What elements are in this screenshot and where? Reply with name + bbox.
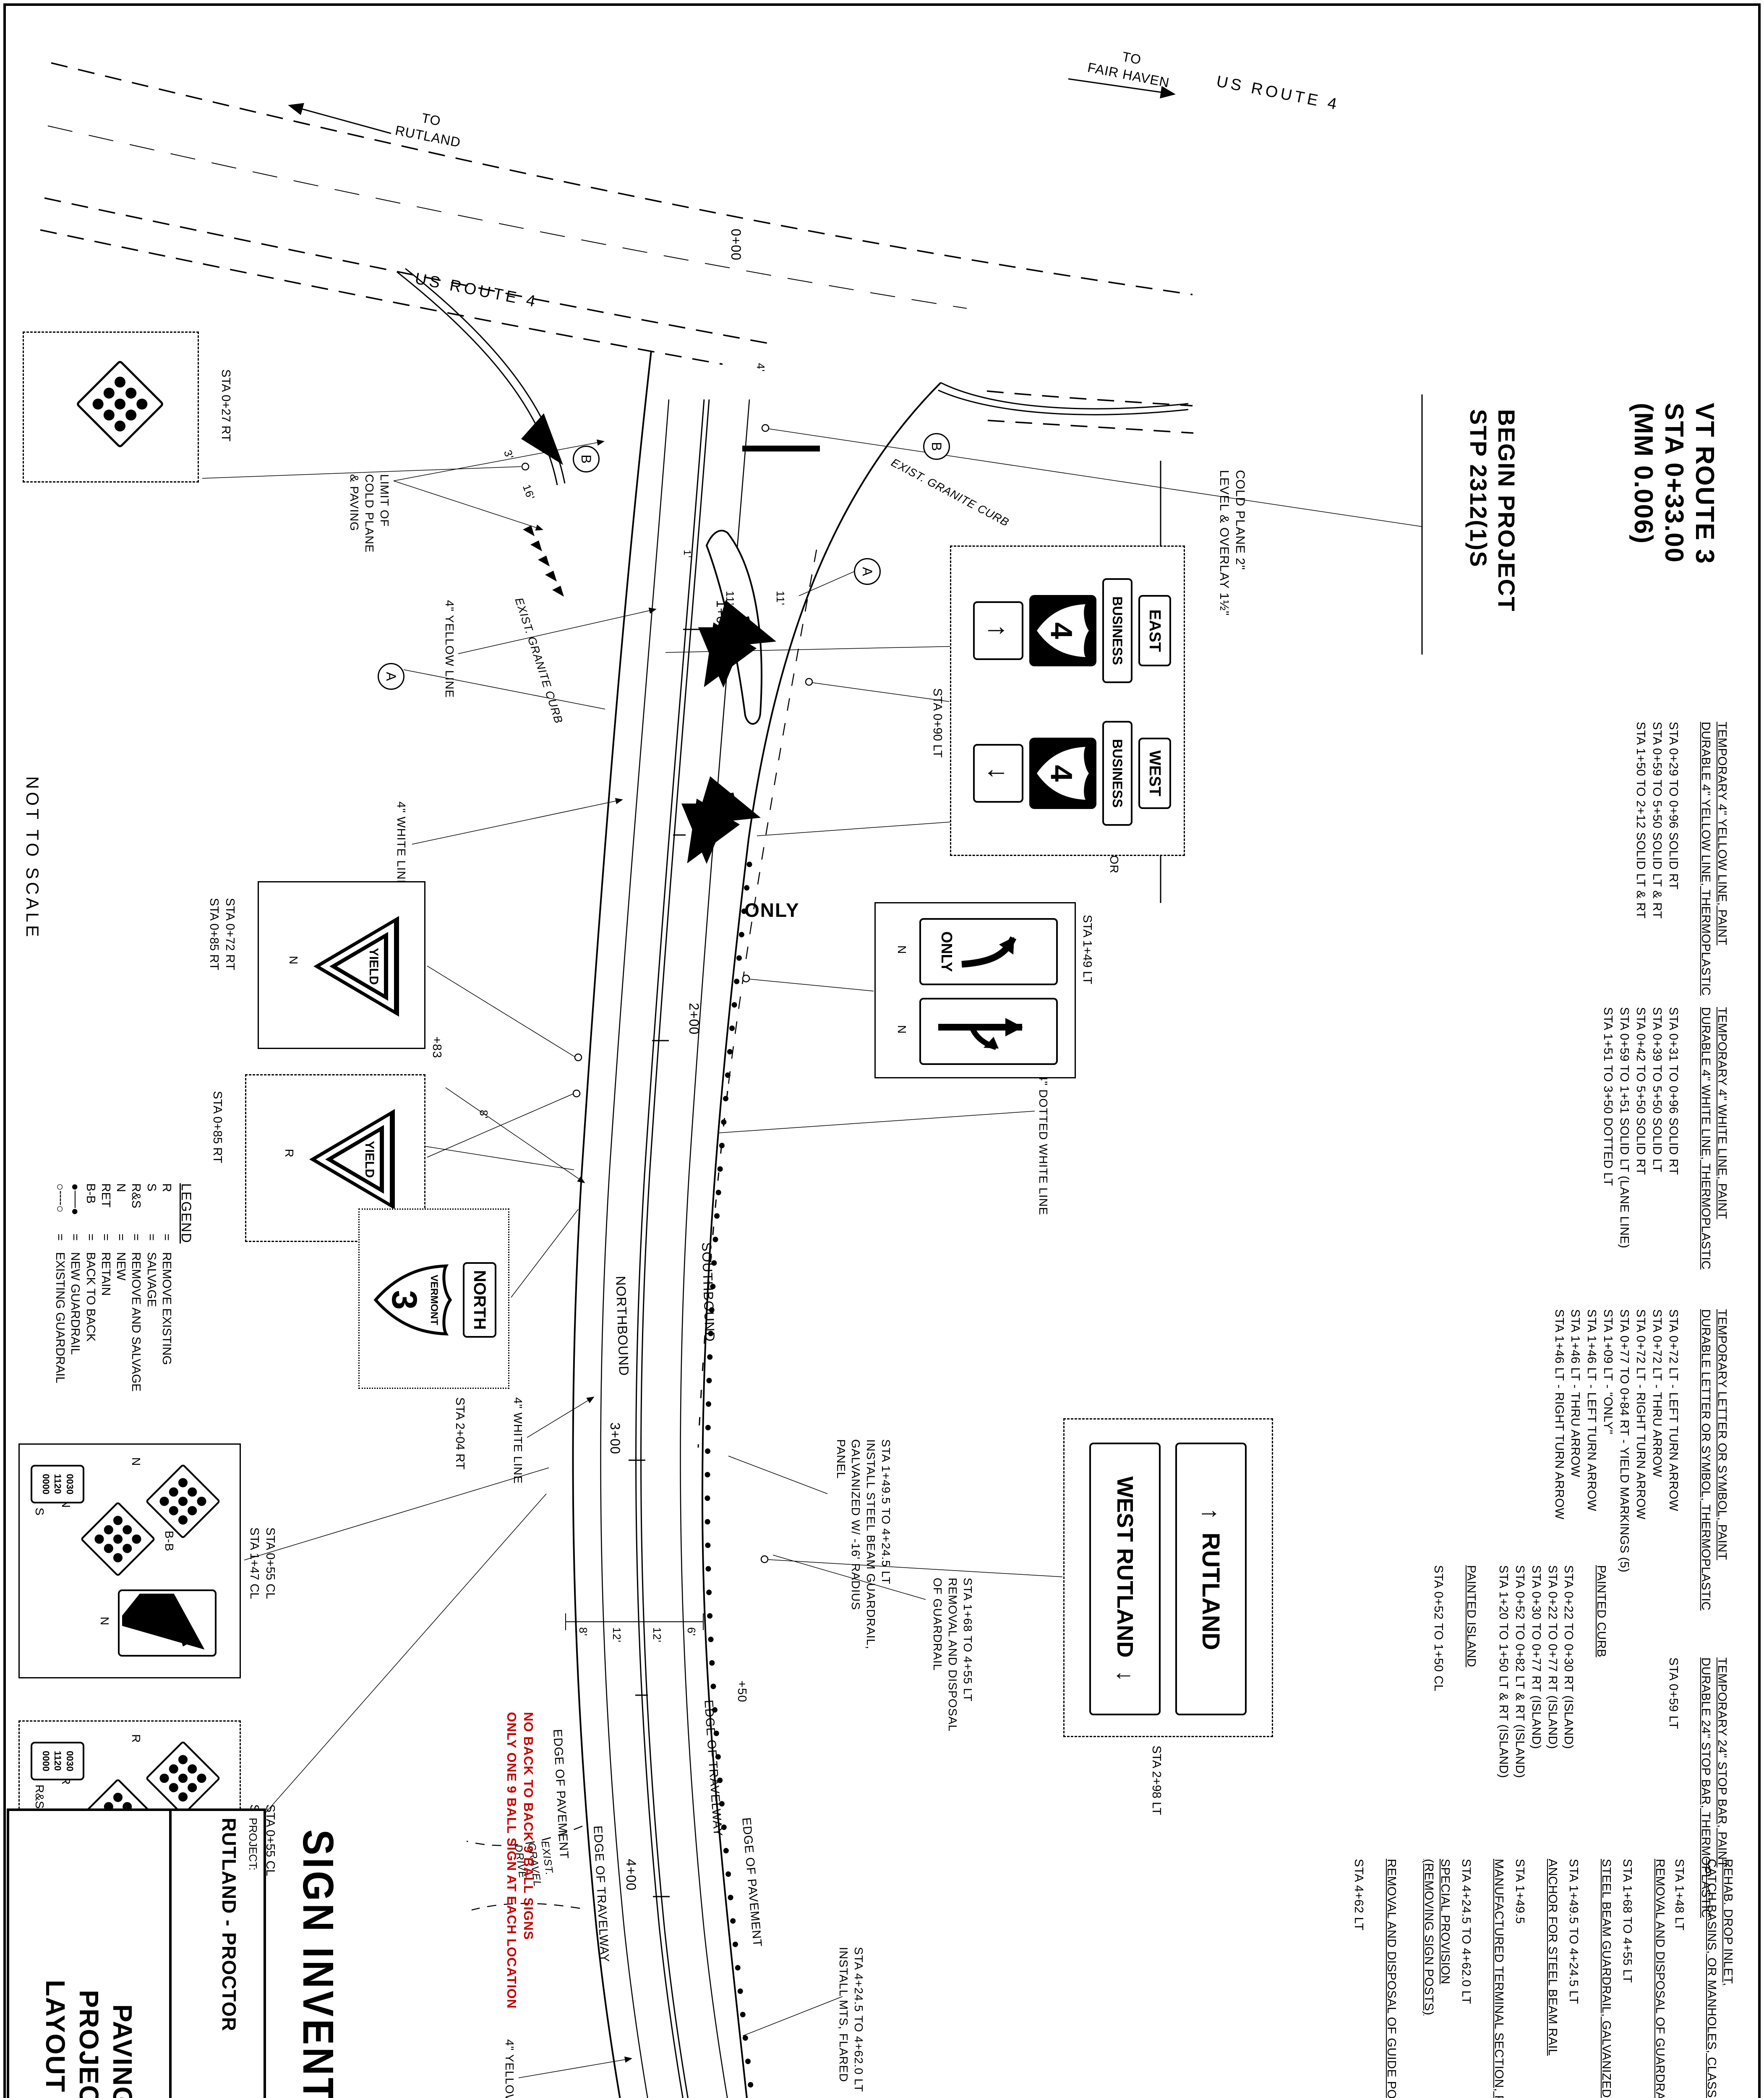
sheet-name-title: SIGN INVENTORY SHEET [293,1829,342,2098]
us-route-4-road [40,63,1193,433]
stop-bar [742,446,820,451]
note-body: STA 4+62 LT [1351,1859,1367,2098]
legend-symbol: N [113,1183,128,1234]
condition-label: N [895,1025,908,1033]
legend-description: RETAIN [98,1252,113,1296]
plan-label: +50 [700,808,716,830]
note-heading: SPECIAL PROVISION (REMOVING SIGN POSTS) [1420,1859,1453,2015]
plan-label: ONLY [744,898,800,923]
note-heading: TEMPORARY LETTER OR SYMBOL, PAINT DURABL… [1697,1309,1730,1610]
plan-label: 4" YELLOW LINE [502,2039,517,2098]
legend-title: LEGEND [178,1183,194,1392]
sign-box-vt3-north: NORTH VERMONT 3 [358,1208,509,1389]
nine-ball-sign-icon [91,1512,145,1566]
plan-label: COLD PLANE 2" LEVEL & OVERLAY 1½" [1216,470,1248,616]
plan-label: STA 1+68 TO 4+55 LT REMOVAL AND DISPOSAL… [930,1578,975,1732]
legend-equals: = [144,1234,159,1252]
plan-label: 12' [610,1627,624,1643]
svg-text:VERMONT: VERMONT [428,1275,440,1325]
sign-box-9ball [23,331,199,483]
plan-label: 4" DOTTED WHITE LINE [1036,1074,1051,1215]
west-rutland-sign-text: WEST RUTLAND [1112,1477,1138,1658]
legend-symbol: R&S [128,1183,144,1234]
condition-label: N [895,945,908,954]
title-block: PROJECT: RUTLAND - PROCTOR PROJECT NO.: … [7,1808,266,2098]
up-arrow-plate: ↑ [973,601,1023,660]
note-heading: TEMPORARY 4" WHITE LINE, PAINT DURABLE 4… [1697,1007,1730,1270]
note-heading: ANCHOR FOR STEEL BEAM RAIL [1544,1859,1560,2056]
legend-symbol: ○╌╌○ [52,1183,68,1234]
detail-bubble: A [854,558,881,585]
yield-sign-icon: YIELD [311,916,399,1017]
plan-label: NOT TO SCALE [21,776,44,940]
legend-row: N = NEW [113,1183,128,1392]
condition-label: R [129,1734,143,1743]
legend-equals: = [113,1234,128,1252]
legend-row: R = REMOVE EXISTING [159,1183,174,1392]
detail-bubble: A [378,663,404,690]
note-heading: STEEL BEAM GUARDRAIL, GALVANIZED [1598,1859,1614,2098]
legend-description: REMOVE AND SALVAGE [128,1252,144,1392]
legend-symbol: RET [98,1183,113,1234]
plan-label: LIMIT OF COLD PLANE & PAVING [347,474,392,553]
svg-text:3: 3 [385,1290,424,1310]
condition-label: R [282,1149,296,1157]
project-cell: PROJECT: RUTLAND - PROCTOR [172,1811,264,2098]
only-sign-text: ONLY [938,932,955,972]
legend-equals: = [52,1234,68,1252]
note-body: STA 0+52 TO 1+50 CL [1430,1565,1447,1691]
west-plate: WEST [1138,738,1171,809]
legend-symbol: R [159,1183,174,1234]
note-heading: PAINTED ISLAND [1463,1565,1479,1691]
legend-row: R&S = REMOVE AND SALVAGE [128,1183,144,1392]
legend-equals: = [68,1234,83,1252]
note-block: TEMPORARY 4" YELLOW LINE, PAINT DURABLE … [1616,722,1746,996]
legend-equals: = [98,1234,113,1252]
condition-label: N [287,956,300,964]
condition-label: S [33,1508,46,1516]
sign-caption: STA 2+98 LT [1148,1746,1164,1815]
detail-bubble: B [923,433,950,460]
nine-ball-sign-icon [156,1751,210,1805]
sign-box-bb-new: N N B-B N 0030 1120 0000 S [18,1443,241,1678]
legend-equals: = [83,1234,98,1252]
legend-description: REMOVE EXISTING [159,1252,174,1365]
west-rutland-sign: WEST RUTLAND ↓ [1089,1443,1161,1715]
station-ticks [629,629,737,2098]
legend-symbol: B-B [83,1183,98,1234]
project-value: RUTLAND - PROCTOR [218,1818,240,2098]
sign-box-yield-new: YIELD N [258,881,425,1049]
inventory-tag-sign: 0030 1120 0000 [31,1742,84,1780]
legend-row: RET = RETAIN [98,1183,113,1392]
plan-label: NORTHBOUND [612,1276,632,1376]
note-block: PAINTED CURB STA 0+22 TO 0+30 RT (ISLAND… [1479,1565,1626,1778]
business-plate: BUSINESS [1102,721,1133,826]
note-block: PAINTED ISLAND STA 0+52 TO 1+50 CL [1414,1565,1495,1691]
sign-box-business-4: EAST BUSINESS 4 ↑ WEST BUSINESS 4 ↓ [950,545,1185,856]
legend-row: S = SALVAGE [144,1183,159,1392]
plan-label: STA 1+49.5 TO 4+24.5 LT INSTALL STEEL BE… [833,1439,893,1649]
up-arrow-icon: ↑ [1197,1508,1225,1520]
plan-sheet: VT ROUTE 3 STA 0+33.00 (MM 0.006) BEGIN … [0,0,1764,2098]
business-plate: BUSINESS [1102,578,1133,683]
legend-description: BACK TO BACK [83,1252,98,1341]
svg-text:YIELD: YIELD [367,948,381,985]
down-arrow-icon: ↓ [1112,1670,1138,1681]
note-heading: REMOVAL AND DISPOSAL OF GUARDRAIL [1652,1859,1668,2098]
sign-caption: STA 0+72 RT STA 0+85 RT [206,898,237,970]
rutland-sign: ↑ RUTLAND [1175,1443,1247,1715]
plan-label: 4" YELLOW LINE [442,600,457,698]
nine-ball-sign-icon [156,1474,210,1528]
yield-pavement-markings [523,525,564,597]
down-arrow-plate: ↓ [973,744,1023,803]
east-assembly: EAST BUSINESS 4 ↑ [973,566,1171,696]
legend-row: B-B = BACK TO BACK [83,1183,98,1392]
begin-project-title: BEGIN PROJECT STP 2312(1)S [1464,409,1521,612]
sign-caption: STA 0+27 RT [217,369,233,441]
legend-description: EXISTING GUARDRAIL [52,1252,68,1383]
svg-text:4: 4 [1044,765,1078,782]
legend-row: ●──● = NEW GUARDRAIL [68,1183,83,1392]
condition-label: R&S [33,1785,46,1809]
sign-caption: STA 0+55 CL STA 1+47 CL [246,1527,278,1599]
note-heading: REMOVAL AND DISPOSAL OF GUIDE POSTS [1383,1859,1399,2098]
plan-label: 11' [723,591,737,605]
us4-shield-icon: 4 [1029,738,1096,809]
note-body: STA 0+29 TO 0+96 SOLID RT STA 0+59 TO 5+… [1632,722,1681,996]
sign-box-rutland: ↑ RUTLAND WEST RUTLAND ↓ [1063,1418,1273,1737]
sign-caption: STA 2+04 RT [451,1397,467,1469]
plan-label: 4" WHITE LINE [394,801,409,888]
svg-text:4: 4 [1044,622,1078,639]
legend-row: ○╌╌○ = EXISTING GUARDRAIL [52,1183,68,1392]
svg-text:YIELD: YIELD [363,1141,376,1178]
plan-label: 4+00 [622,1859,639,1891]
plan-label: 3+00 [606,1422,624,1454]
sign-box-lane-control: ONLY N N [874,902,1076,1078]
plan-label: +50 [734,1680,749,1702]
sign-caption: STA 0+90 LT [929,688,945,758]
us4-shield-icon: 4 [1029,595,1096,666]
legend-equals: = [159,1234,174,1252]
north-plaque: NORTH [463,1262,496,1338]
vt3-shield-icon: VERMONT 3 [371,1260,455,1340]
route-station-title: VT ROUTE 3 STA 0+33.00 (MM 0.006) [1628,403,1720,564]
plan-label: 11' [773,591,787,605]
plan-label: SOUTHBOUND [698,1242,718,1342]
plan-label: 4" WHITE LINE [510,1397,525,1484]
left-turn-only-sign: ONLY [919,918,1058,985]
legend-description: NEW GUARDRAIL [68,1252,83,1355]
legend-description: SALVAGE [144,1252,159,1307]
bb-label: B-B [162,1531,177,1552]
legend-symbol: S [144,1183,159,1234]
curb-island-wedge [521,413,563,465]
note-heading: MANUFACTURED TERMINAL SECTION, FLARED [1490,1859,1507,2098]
plan-label: 6' [684,1627,698,1636]
condition-label: N [98,1617,111,1625]
note-body: STA 0+22 TO 0+30 RT (ISLAND) STA 0+22 TO… [1495,1565,1576,1778]
west-assembly: WEST BUSINESS 4 ↓ [973,708,1171,838]
nine-ball-sign-icon [89,373,151,436]
plan-label: 2+00 [685,1003,702,1035]
sign-caption: STA 0+85 RT [209,1091,225,1163]
plan-label: 1' [680,550,693,558]
sign-caption: STA 1+49 LT [1079,915,1095,984]
east-plate: EAST [1138,595,1171,666]
yield-sign-icon: YIELD [307,1109,395,1210]
legend-description: NEW [113,1252,128,1281]
detail-bubble: B [573,446,600,472]
plan-label: 12' [650,1627,664,1643]
plan-label: 8' [477,1110,491,1119]
legend-symbol: ●──● [68,1183,83,1234]
legend: LEGEND R = REMOVE EXISTING S = SALVAGE R… [52,1183,194,1392]
plan-label: +83 [429,1036,444,1058]
curve-arrow-sign-icon [118,1589,217,1657]
plan-label: 0+00 [727,229,744,261]
note-block: TEMPORARY 4" WHITE LINE, PAINT DURABLE 4… [1583,1007,1746,1270]
legend-equals: = [128,1234,144,1252]
note-heading: PAINTED CURB [1593,1565,1609,1778]
plan-label: STA 4+24.5 TO 4+62.0 LT INSTALL MTS, FLA… [836,1947,866,2092]
note-heading: REHAB. DROP INLET, CATCH BASINS, OR MANH… [1703,1859,1736,2098]
condition-label: N [129,1457,143,1466]
note-body: STA 0+31 TO 0+96 SOLID RT STA 0+39 TO 5+… [1600,1007,1681,1270]
legend-items: R = REMOVE EXISTING S = SALVAGE R&S = RE… [52,1183,174,1392]
note-block: REMOVAL AND DISPOSAL OF GUIDE POSTS STA … [1334,1859,1416,2098]
thru-right-sign [919,998,1058,1065]
plan-label: 8' [576,1627,590,1636]
inventory-tag-sign: 0030 1120 0000 [31,1465,84,1503]
rutland-sign-text: RUTLAND [1197,1532,1225,1650]
title-block-left: PROJECT: RUTLAND - PROCTOR PROJECT NO.: … [9,1811,264,2098]
note-heading: TEMPORARY 4" YELLOW LINE, PAINT DURABLE … [1697,722,1730,996]
layout-title: PAVING PROJECT LAYOUT #1 [9,1811,169,2098]
plan-label: NO BACK TO BACK 9 BALL SIGNS ONLY ONE 9 … [504,1712,537,2009]
plan-label: 4' [754,363,767,372]
project-label: PROJECT: [246,1818,259,2098]
